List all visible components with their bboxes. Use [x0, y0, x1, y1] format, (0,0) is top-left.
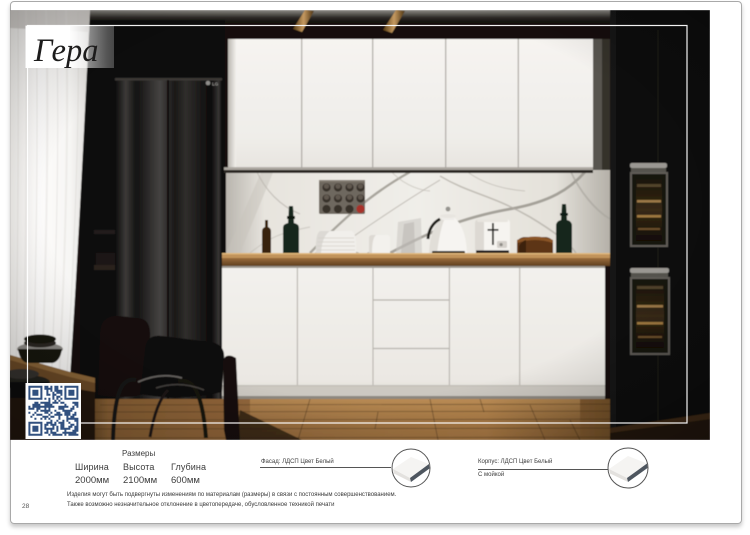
svg-text:Гера: Гера: [33, 33, 98, 69]
